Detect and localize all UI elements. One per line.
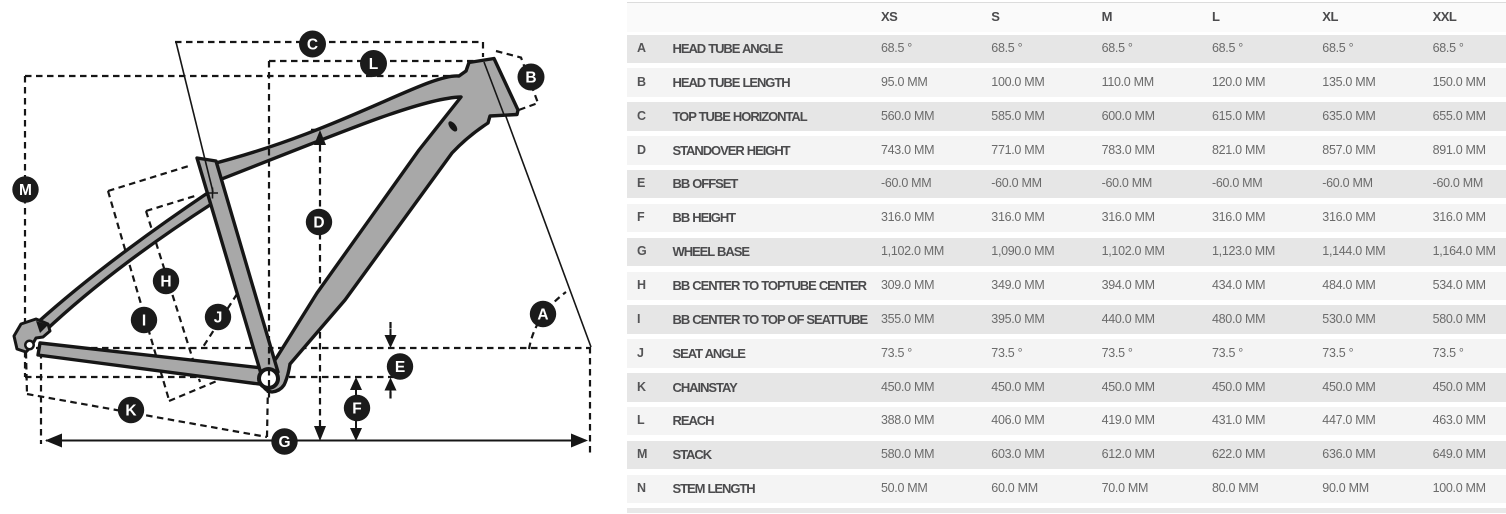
svg-text:D: D — [313, 215, 324, 232]
svg-text:C: C — [307, 37, 318, 54]
svg-text:B: B — [525, 70, 536, 87]
svg-text:K: K — [125, 403, 137, 420]
svg-text:A: A — [537, 307, 548, 324]
svg-text:G: G — [278, 434, 290, 451]
svg-text:M: M — [19, 182, 32, 199]
svg-text:J: J — [214, 310, 223, 327]
svg-text:F: F — [352, 401, 361, 418]
svg-text:I: I — [142, 313, 146, 330]
svg-text:H: H — [160, 274, 171, 291]
svg-text:E: E — [395, 359, 405, 376]
svg-text:L: L — [369, 56, 378, 73]
